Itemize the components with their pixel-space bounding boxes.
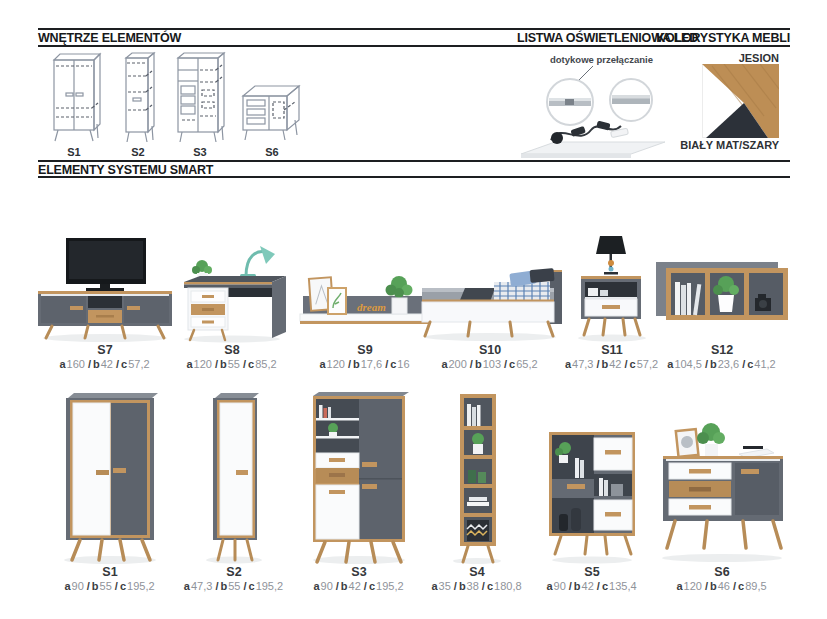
product-card-s11: S11 a47,3/b42/c57,2 [567,232,657,370]
drawing-label-s2: S2 [118,146,158,158]
interior-drawing-s2 [118,50,158,148]
product-name: S3 [351,566,366,579]
swatch-body-label: BIAŁY MAT/SZARY [649,139,779,151]
product-name: S8 [224,344,239,357]
system-title: ELEMENTY SYSTEMU SMART [38,163,213,177]
product-name: S4 [469,566,484,579]
product-name: S2 [226,566,241,579]
product-dims: a90/b55/c195,2 [64,580,155,592]
narrow-bookcase-photo [440,386,514,566]
catalog-page: WNĘTRZE ELEMENTÓW LISTWA OŚWIETLENIOWA L… [0,0,827,619]
product-card-s3: S3 a90/b42/c195,2 [299,386,419,592]
product-card-s8: S8 a120/b55/c85,2 [172,232,292,370]
interior-title: WNĘTRZE ELEMENTÓW [38,31,181,45]
tv-stand-photo [30,232,180,344]
narrow-wardrobe-photo [191,386,277,566]
desk-photo [172,232,292,344]
product-name: S5 [584,566,599,579]
wardrobe-s1-linedrawing [46,50,102,144]
product-dims: a47,3/b55/c195,2 [184,580,284,592]
product-dims: a104,5/b23,6/c41,2 [667,358,776,370]
product-name: S11 [601,344,623,357]
product-card-s5: S5 a90/b42/c135,4 [537,386,647,592]
product-dims: a120/b17,6/c16 [319,358,410,370]
header-underline [38,45,790,47]
product-dims: a200/b103/c65,2 [441,358,538,370]
drawing-label-s3: S3 [180,146,220,158]
drawer-bookcase-photo [537,386,647,566]
product-dims: a90/b42/c195,2 [313,580,404,592]
product-dims: a35/b38/c180,8 [431,580,522,592]
product-name: S1 [102,566,117,579]
colors-title: KOLORYSTYKA MEBLI [656,31,790,45]
product-card-s10: S10 a200/b103/c65,2 [410,232,570,370]
product-dims: a160/b42/c57,2 [59,358,150,370]
bed-photo [410,232,570,344]
dresser-s6-linedrawing [237,50,307,144]
product-name: S6 [714,566,729,579]
bookcase-s3-linedrawing [172,50,228,144]
cabinet-s2-linedrawing [118,50,158,144]
product-dims: a120/b55/c85,2 [186,358,277,370]
interior-drawing-s3 [172,50,228,148]
product-card-s2: S2 a47,3/b55/c195,2 [191,386,277,592]
product-card-s6: S6 a120/b46/c89,5 [647,386,797,592]
product-dims: a90/b42/c135,4 [546,580,637,592]
product-name: S9 [357,344,372,357]
product-card-s7: S7 a160/b42/c57,2 [30,232,180,370]
cube-shelf-photo [652,232,792,344]
wardrobe-photo [50,386,170,566]
bedside-table-photo [567,232,657,344]
dream-sign: dream [357,301,386,313]
product-dims: a47,3/b42/c57,2 [565,358,659,370]
product-name: S10 [479,344,501,357]
top-rule [38,28,790,30]
product-dims: a120/b46/c89,5 [676,580,767,592]
tall-cabinet-photo [299,386,419,566]
drawing-label-s6: S6 [252,146,292,158]
product-name: S7 [97,344,112,357]
product-name: S12 [711,344,733,357]
swatch-wood-label: JESION [689,52,779,64]
interior-drawing-s1 [46,50,102,148]
sideboard-photo [647,386,797,566]
furniture-color-swatch [702,64,779,138]
product-card-s4: S4 a35/b38/c180,8 [440,386,514,592]
interior-drawing-s6 [237,50,307,148]
product-card-s12: S12 a104,5/b23,6/c41,2 [652,232,792,370]
product-card-s1: S1 a90/b55/c195,2 [50,386,170,592]
drawing-label-s1: S1 [54,146,94,158]
